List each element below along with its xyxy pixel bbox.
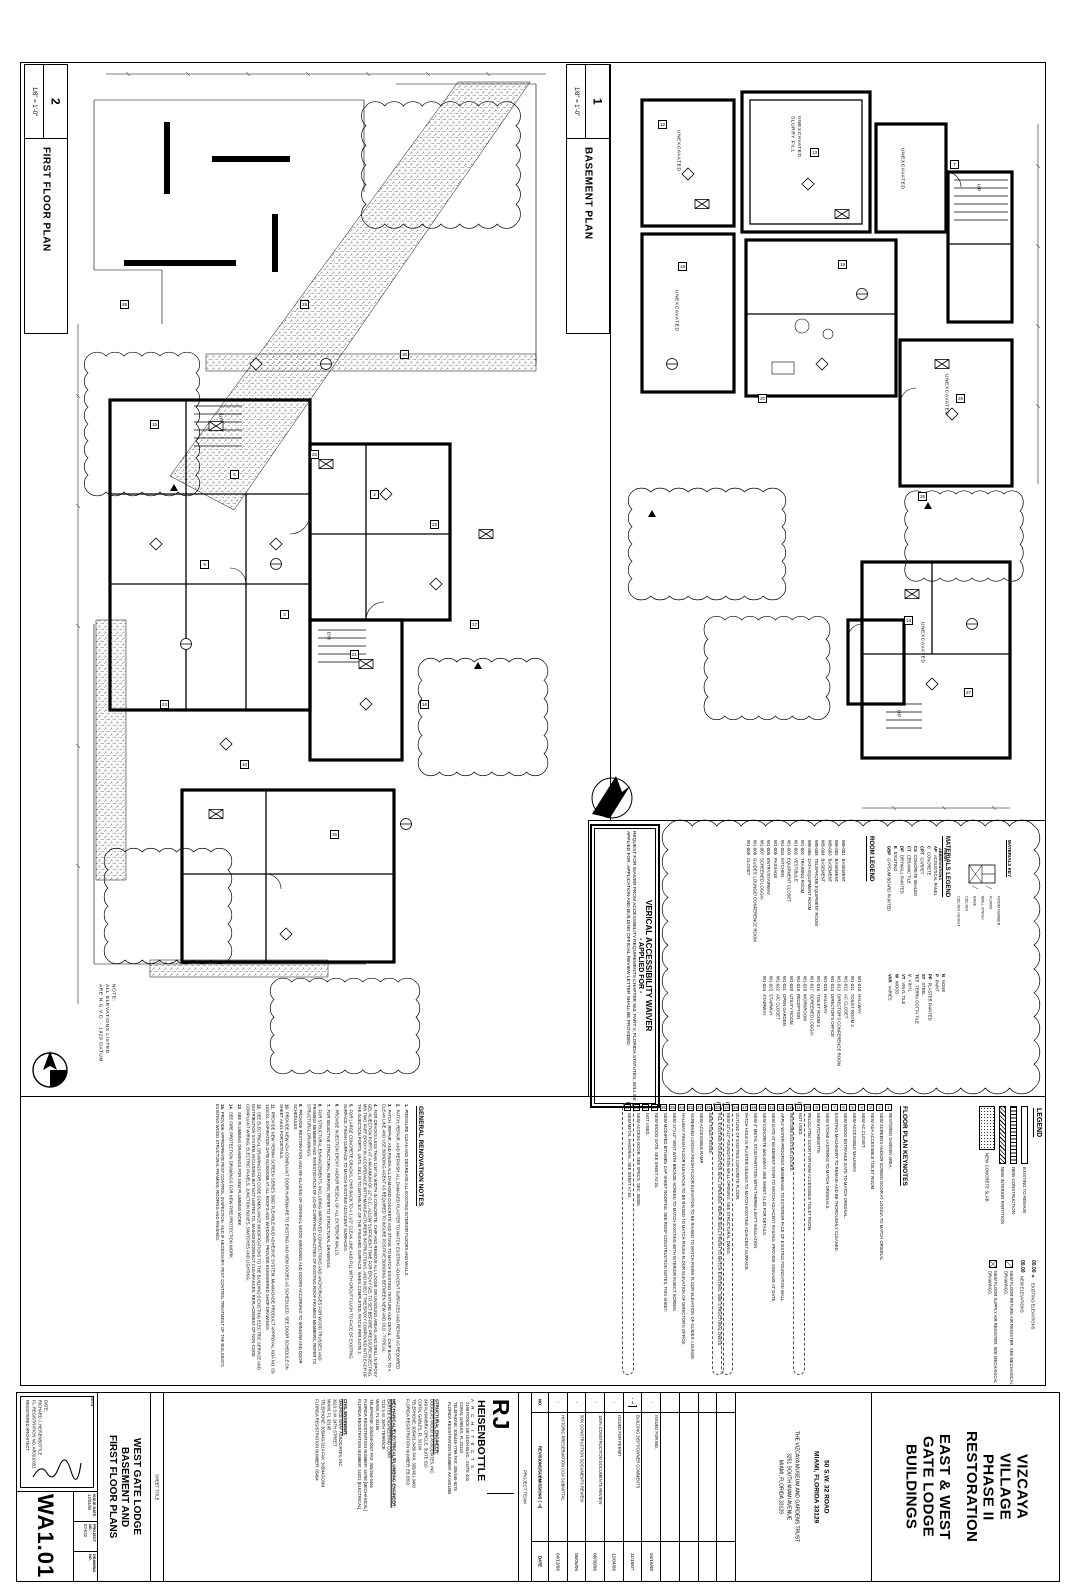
finish-entry: PPAINT	[934, 974, 940, 1092]
revision-row	[660, 1393, 679, 1581]
keynote-number: 7	[831, 1104, 838, 1111]
legend: LEGEND EXISTING TO REMAIN NEW CONSTRUCTI…	[908, 1102, 1046, 1386]
material-entry: GBPGYPSUM BOARD PAINTED	[886, 846, 892, 964]
keynote-text: NEW ACCESSIBLE RAMP.	[699, 1113, 704, 1373]
materials-key-label: BASE	[972, 896, 977, 906]
materials-key-label: WALL FINISH	[980, 896, 985, 920]
keynote-tag	[474, 662, 482, 669]
seal-box: DATE: RICHARD J. HEISENBOTTLE FL. REGIST…	[20, 1396, 94, 1488]
room-legend-entry: W1-001TRAINING ROOM	[799, 840, 805, 972]
revision-date	[680, 1541, 698, 1581]
legend-hatch-entry: EXISTING TO REMAIN	[1021, 1106, 1028, 1277]
keynote-tag	[924, 502, 932, 509]
hatch-swatch	[999, 1106, 1006, 1164]
finish-entry: VVINYL	[907, 974, 913, 1092]
keynote-item: 21 NEW TOILET ROOM.	[705, 1104, 713, 1373]
finish-entry: STSTEEL	[920, 974, 926, 1092]
keynote-item: 20 FILL EXISTING FOUNDATION WALL OPENING…	[714, 1104, 722, 1373]
basement-plan-drawing: UNEXCAVATEDUNEXCAVATED SLURRY FILLUNEXCA…	[612, 64, 1048, 822]
keynote-item: 4 NEW AC CLOSET.	[858, 1104, 866, 1373]
keynote-number: 10	[804, 1104, 811, 1111]
material-entry: CPTCARPET	[919, 846, 925, 964]
legend-symbol-entry: 00.00 × EXISTING ELEVATIONS	[1030, 1260, 1036, 1401]
keynote-item: 28 NOT USED.	[642, 1104, 650, 1373]
materials-key-title: MATERIALS KEY	[1007, 840, 1012, 877]
room-legend-entry: W1-020UTILITY ROOM	[788, 976, 794, 1108]
revision-number: 1	[624, 1393, 642, 1413]
project-team-cell: RJ HEISENBOTTLE A R C H I T E C T S 2199…	[163, 1393, 531, 1581]
basement-plan-linework	[612, 64, 1048, 822]
keynote-item: 17 PATCH HOLE IN PLASTER CEILING TO MATC…	[741, 1104, 749, 1373]
general-note-item: 6.PROVIDE INJECTION EPOXY AND/OR RESEAL …	[334, 1104, 339, 1378]
keynote-item: 15 NEW CONCRETE WALKWAY. SEE SHEET A1.02…	[759, 1104, 767, 1373]
plan-text-label: UNEXCAVATED	[918, 622, 924, 664]
room-finish-tag-icon	[968, 864, 998, 890]
room-legend-entry: WB-001BASEMENT	[840, 840, 846, 972]
keynote-tag	[170, 484, 178, 491]
project-name-cell: VIZCAYA VILLAGE PHASE II RESTORATION EAS…	[871, 1393, 1059, 1581]
plan-text-label: UNEXCAVATED SLURRY FILL	[788, 116, 801, 158]
revisions-date-header: DATE	[532, 1541, 548, 1581]
basement-scale: 1/8" = 1'-0"	[573, 87, 579, 116]
revision-row: - 50% CONSTRUCTION DOCUMENTS REVIEW 05/0…	[567, 1393, 586, 1581]
revision-date: 12/04/06	[605, 1541, 623, 1581]
project-team-label: PROJECT TEAM	[523, 1470, 528, 1504]
room-legend-entry: W1-016TOILET ROOM 1	[815, 976, 821, 1108]
legend-symbols: 00.00 × EXISTING ELEVATIONS 00.00 NEW EL…	[987, 1260, 1036, 1401]
keynote-tag: 24	[160, 700, 169, 709]
revision-number	[680, 1393, 698, 1413]
keynote-item: 26 NEW MODIFIED BITUMEN CAP SHEET ROOFIN…	[660, 1104, 668, 1373]
keynote-number: 15	[759, 1104, 766, 1111]
north-arrow-icon	[26, 1046, 74, 1094]
plan-text-label: DN	[324, 632, 330, 640]
finishes-list: NNONEPPAINTPPPLASTER PAINTEDSTSTEELTCTTE…	[887, 974, 946, 1092]
keynote-tag: 5	[230, 470, 239, 479]
symbol-glyph: 00.00 ×	[1030, 1260, 1036, 1280]
revision-date: 11/16/07	[624, 1541, 642, 1581]
legend-symbol-entry: ⧄ NEW FLOOR RETURN AIR REGISTER. SEE MEC…	[1003, 1260, 1014, 1401]
finish-entry: PPPLASTER PAINTED	[927, 974, 933, 1092]
room-legend-entry: W1-024STAIRWAY	[761, 976, 767, 1108]
materials-key-label: CEILING	[964, 896, 969, 911]
revision-number: -	[568, 1393, 586, 1413]
keynotes-list: 1 RESTORED GARDEN AREA. 2 NEW SCREENS AN…	[624, 1104, 893, 1373]
room-legend-group-2: W1-010HALLWAYW1-011TOILET ROOM 2W1-012AC…	[761, 976, 862, 1108]
sheet-title: WEST GATE LODGE BASEMENT AND FIRST FLOOR…	[106, 1435, 142, 1538]
keynote-tag: 14	[904, 616, 913, 625]
keynote-number: 11	[795, 1104, 802, 1111]
room-legend-entry: W1-019RECEPTION	[795, 976, 801, 1108]
plan-text-label: NOTE: ALL ELEVATIONS LISTED ARE N.G.V.D.…	[96, 984, 115, 1064]
revision-number: -	[605, 1393, 623, 1413]
keynote-text: NEW GATE AT BASEMENT STAIR TO MATCH ADJA…	[771, 1113, 776, 1373]
revision-date	[661, 1541, 679, 1581]
room-legend-entry: W1-023STAIRWAY	[768, 976, 774, 1108]
keynote-number: 26	[660, 1104, 667, 1111]
keynote-item: 12 RESTORE EXISTING DOORS.	[786, 1104, 794, 1373]
revision-row: 1 BUILDING DEPT/OWNER COMMENTS 11/16/07	[623, 1393, 642, 1581]
basement-plan-title-strip: 1/8" = 1'-0" 1 BASEMENT PLAN	[566, 64, 610, 334]
keynote-number: 25	[669, 1104, 676, 1111]
title-block-field: PROJECT NO. 03-032	[74, 1522, 97, 1552]
engineer-details: DOUGLAS WOOD & ASSOCIATES, INC. 249 ALHA…	[405, 1399, 435, 1511]
keynote-number: 2	[876, 1104, 883, 1111]
keynote-item: 6 NEW WOOD ENTRANCE GATE TO MATCH ORIGIN…	[840, 1104, 848, 1373]
keynote-text: RESTORED GARDEN AREA.	[888, 1113, 893, 1373]
keynote-tag: 17	[470, 620, 479, 629]
revision-description: ISSUED FOR PERMIT	[605, 1413, 623, 1541]
seal-label: SEAL	[90, 1396, 95, 1407]
north-arrow-icon	[582, 768, 634, 820]
revision-row	[716, 1393, 735, 1581]
floor-plan-keynotes: FLOOR PLAN KEYNOTES 1 RESTORED GARDEN AR…	[428, 1102, 908, 1386]
keynote-tag: 26	[918, 492, 927, 501]
keynote-tag: 22	[310, 450, 319, 459]
keynote-tag: 16	[420, 700, 429, 709]
signature-icon	[29, 1457, 85, 1483]
engineer-blocks: STRUCTURAL ENGINEER: DOUGLAS WOOD & ASSO…	[314, 1399, 440, 1511]
keynote-tag: 9	[200, 560, 209, 569]
material-entry: DPDRYWALL PAINTED	[899, 846, 905, 964]
revision-description	[717, 1413, 735, 1541]
keynote-tag: 25	[330, 830, 339, 839]
revision-date	[699, 1541, 717, 1581]
room-legend-entry: W1-009CLOSET	[745, 840, 751, 972]
hatch-label: NEW CONCRETE SLAB	[985, 1153, 990, 1263]
keynote-number: 29	[633, 1104, 640, 1111]
symbol-label: NEW FLOOR SUPPLY AIR REGISTER. SEE MECHA…	[987, 1271, 998, 1389]
room-legend-entry: W1-018WORKROOM	[802, 976, 808, 1108]
keynote-number: 4	[858, 1104, 865, 1111]
room-legend-entry: W1-022A/C CLOSET	[775, 976, 781, 1108]
symbol-glyph: ⧄	[1005, 1260, 1013, 1268]
drawing-number: WA1.01	[32, 1494, 58, 1578]
firm-initials-logo: RJ	[487, 1399, 514, 1494]
keynote-number: 28	[642, 1104, 649, 1111]
room-legend-entry: W1-010HALLWAY	[856, 976, 862, 1108]
keynote-text: NOT USED.	[798, 1113, 803, 1373]
finish-entry: VTVINYL TILE	[900, 974, 906, 1092]
symbol-glyph: ⊠	[989, 1260, 997, 1268]
keynote-number: 21	[705, 1104, 712, 1111]
room-legend-entry: W1-012AC CLOSET	[843, 976, 849, 1108]
engineer-details: BARTEK ENGINEERING CORP. 7210 S.W. 39TH …	[356, 1399, 392, 1511]
keynote-item: 16 NEW 4" METAL STUD PARTITION WITH THER…	[750, 1104, 758, 1373]
first-floor-plan-title: FIRST FLOOR PLAN	[41, 147, 52, 333]
keynote-tag: 18	[678, 262, 687, 271]
revision-number	[661, 1393, 679, 1413]
revision-row: - ISSUED FOR PERMIT 12/04/06	[604, 1393, 623, 1581]
revision-date: 05/05/06	[568, 1541, 586, 1581]
keynote-text: NEW TOILET ROOM.	[708, 1113, 713, 1373]
keynote-text: NEW 12"x12" VENT WITH BRONZE SCREEN TO M…	[672, 1113, 677, 1373]
revision-description	[661, 1413, 679, 1541]
first-floor-plan-drawing: NOTE: ALL ELEVATIONS LISTED ARE N.G.V.D.…	[66, 64, 572, 1094]
legend-hatch-entry: NEW INTERIOR PARTITION	[999, 1106, 1006, 1277]
keynote-item: 7 EXISTING MACHINERY TO REMAIN AND BE TH…	[831, 1104, 839, 1373]
keynote-text: APPLY WATER-PROOFING MEMBRANE TO EXTERIO…	[780, 1113, 785, 1373]
keynote-item: 25 NEW 12"x12" VENT WITH BRONZE SCREEN T…	[669, 1104, 677, 1373]
general-note-item: 12.SEE ELECTRICAL DRAWINGS FOR CODE COMP…	[245, 1104, 261, 1378]
keynote-item: 18 OUTLINE OF EXISTING CONCRETE FLOOR.	[732, 1104, 740, 1373]
general-notes-list: 1.PRESSURE CLEAN AND DEGREASE ALL EXISTI…	[214, 1104, 409, 1378]
keynote-item: 22 NEW ACCESSIBLE RAMP.	[696, 1104, 704, 1373]
revision-date	[717, 1541, 735, 1581]
plan-text-label: UP	[974, 184, 980, 192]
keynote-item: 30 NEW METAL HANDRAIL. SEE SHEET A7.04.	[624, 1104, 632, 1373]
revision-description	[680, 1413, 698, 1541]
keynote-item: 10 RELOCATED DOOR FOR NEW ACCESSIBLE TOI…	[804, 1104, 812, 1373]
keynote-text: RELOCATED DOOR FOR NEW ACCESSIBLE TOILET…	[807, 1113, 812, 1373]
materials-column-header: FINISH ABBREVIATIONS	[938, 848, 948, 880]
field-value: 03-032	[83, 1524, 88, 1549]
room-legend-entry: W1-005PASSAGE	[772, 840, 778, 972]
revisions-cell: NO. REVISIONS/SUBMISSIONS (△) DATE	[531, 1393, 735, 1581]
firm-name: HEISENBOTTLE	[475, 1400, 487, 1494]
room-legend-entry: W1-003EQUIPMENT CLOSET	[786, 840, 792, 972]
keynote-number: 24	[678, 1104, 685, 1111]
engineer-block: CIVIL ENGINEER: MAURICE GRAY ASSOCIATES,…	[314, 1399, 349, 1511]
revision-description: BUILDING DEPT/OWNER COMMENTS	[624, 1413, 642, 1541]
revision-number	[717, 1393, 735, 1413]
general-note-item: 2.PATCH, REPAIR, AND REFINISH ALL DAMAGE…	[395, 1104, 400, 1378]
keynote-tag: 12	[658, 120, 667, 129]
keynote-text: FILL EXISTING FOUNDATION WALL OPENING. R…	[717, 1113, 722, 1373]
keynote-text: NEW KITCHENETTE.	[816, 1113, 821, 1373]
room-legend-group-1: WB-001BASEMENTWB-002BASEMENTWB-003BASEME…	[745, 840, 846, 972]
keynote-item: 1 RESTORED GARDEN AREA.	[885, 1104, 893, 1373]
finish-entry: NNONE	[940, 974, 946, 1092]
keynote-tag: 7	[950, 160, 959, 169]
keynote-text: NEW ACCESSIBLE WALKWAY.	[852, 1113, 857, 1373]
room-legend-entry: WB-002BASEMENT	[833, 840, 839, 972]
owner-address-cell: 50 S.W. 32 ROAD MIAMI, FLORIDA 33129 THE…	[735, 1393, 871, 1581]
general-note-item: 15.PROVIDE APPROPRIATE PEST CONTROL, INS…	[214, 1104, 225, 1378]
keynote-tag: 15	[150, 420, 159, 429]
room-legend-entry: W1-017SCREENED LOGGIA	[809, 976, 815, 1108]
keynote-text: NEW 4" METAL STUD PARTITION WITH THERMAL…	[753, 1113, 758, 1373]
room-legend-entry: W1-011TOILET ROOM 2	[849, 976, 855, 1108]
materials-key-label: ROOM NUMBER	[996, 896, 1001, 925]
plan-text-label: UNEXCAVATED	[672, 290, 678, 332]
keynote-text: RESTORE EXISTING DOORS.	[789, 1113, 794, 1373]
field-label: DRAWING NO.	[88, 1554, 96, 1579]
keynote-number: 8	[822, 1104, 829, 1111]
first-floor-view-number: 2	[49, 98, 63, 105]
revisions-header: REVISIONS/SUBMISSIONS (△)	[532, 1413, 548, 1541]
finish-entry: WWOOD	[894, 974, 900, 1092]
keynote-number: 9	[813, 1104, 820, 1111]
general-note-item: 5.FOR LARGE CONCRETE CRACKS, CHIP BACK T…	[342, 1104, 353, 1378]
general-renovation-notes: GENERAL RENOVATION NOTES 1.PRESSURE CLEA…	[28, 1102, 426, 1386]
general-notes-title: GENERAL RENOVATION NOTES	[417, 1106, 424, 1206]
keynote-tag: 19	[838, 260, 847, 269]
revisions-no-header: NO.	[532, 1393, 548, 1413]
keynote-number: 1	[885, 1104, 892, 1111]
field-label: PROJECT NO.	[88, 1524, 96, 1549]
plan-text-label: UP	[216, 414, 222, 422]
keynote-tag: 29	[300, 300, 309, 309]
keynote-item: 19 NEW 12"x12" FOUNDATION WALL OPENING. …	[723, 1104, 731, 1373]
keynote-number: 13	[777, 1104, 784, 1111]
room-legend-entry: W1-021OPEN GARDEN	[781, 976, 787, 1108]
room-legend-entry: W1-008GUIDES' LOUNGE/ CONFERENCE ROOM	[752, 840, 758, 972]
keynote-text: NEW WOOD GATE. SEE SHEET A2.04.	[654, 1113, 659, 1373]
revision-row	[679, 1393, 698, 1581]
keynote-tag: 20	[758, 394, 767, 403]
plan-text-label: UNEXCAVATED	[674, 130, 680, 172]
room-legend-entry: WB-006DATA EQUIPMENT ROOM	[806, 840, 812, 972]
title-block: DATE: RICHARD J. HEISENBOTTLE FL. REGIST…	[16, 1392, 1060, 1582]
room-legend-entry: W1-013DIRECTOR'S CONFERENCE ROOM	[836, 976, 842, 1108]
project-name-line-2: EAST & WEST GATE LODGE BUILDINGS	[902, 1434, 952, 1540]
revision-description: HISTORIC PRESERVATION COA SUBMITTAL	[549, 1413, 567, 1541]
revision-description: 100% CONSTRUCTION DOCUMENTS REVIEW	[586, 1413, 604, 1541]
plan-divider-line	[610, 64, 611, 820]
engineer-heading: MECHANICAL/ELECTRICAL/PLUMBING ENGINEER:	[392, 1399, 397, 1511]
keynote-number: 5	[849, 1104, 856, 1111]
keynote-tag: 21	[350, 650, 359, 659]
engineer-details: MAURICE GRAY ASSOCIATES, INC. 3923 S.W. …	[314, 1399, 344, 1511]
keynote-number: 18	[732, 1104, 739, 1111]
legend-hatch-entry: NEW CONCRETE SLAB	[979, 1106, 995, 1277]
room-legend-title: ROOM LEGEND	[868, 836, 874, 881]
keynote-tag: 2	[370, 490, 379, 499]
plan-text-label: UNEXCAVATED	[898, 148, 904, 190]
keynote-number: 16	[750, 1104, 757, 1111]
basement-plan-title: BASEMENT PLAN	[583, 147, 594, 333]
revision-number: -	[642, 1393, 660, 1413]
revision-date: 04/16/08	[642, 1541, 660, 1581]
keynote-number: 19	[723, 1104, 730, 1111]
revision-row: - 100% CONSTRUCTION DOCUMENTS REVIEW 06/…	[585, 1393, 604, 1581]
engineer-block: MECHANICAL/ELECTRICAL/PLUMBING ENGINEER:…	[356, 1399, 397, 1511]
materials-key-label: FLOOR	[988, 896, 993, 909]
keynote-number: 23	[687, 1104, 694, 1111]
keynote-item: 13 APPLY WATER-PROOFING MEMBRANE TO EXTE…	[777, 1104, 785, 1373]
revision-date: 06/30/06	[586, 1541, 604, 1581]
material-entry: EEXISTING	[892, 846, 898, 964]
keynote-tag: 13	[810, 148, 819, 157]
general-note-item: 14.SEE FIRE PROTECTION DRAWINGS FOR NEW …	[228, 1104, 233, 1378]
room-legend-entry: W1-002VESTIBULE	[793, 840, 799, 972]
general-note-item: 11.PROVIDE NEW 'PERMA SCREEN SERIES 3000…	[264, 1104, 275, 1378]
keynote-item: 5 NEW ACCESSIBLE WALKWAY.	[849, 1104, 857, 1373]
finish-entry: TCTTERRA COTTA TILE	[914, 974, 920, 1092]
general-note-item: 9.PROVIDE RESTORATION AND RE-GLAZING OF …	[292, 1104, 303, 1378]
materials-list: APACOUSTICAL PANELCCONCRETECPTCARPETCSCO…	[886, 846, 938, 964]
plan-text-label: UP	[894, 710, 900, 718]
legend-hatch-entry: NEW CONSTRUCTION	[1010, 1106, 1017, 1277]
keynote-item: 9 NEW KITCHENETTE.	[813, 1104, 821, 1373]
room-legend-entry: W1-004KITCHEN	[779, 840, 785, 972]
general-note-item: 10.PROVIDE NEW ADA COMPLIANT DOOR HARDWA…	[278, 1104, 289, 1378]
hatch-swatch	[979, 1106, 995, 1150]
general-note-item: 4.FOR CRACKS LESS THAN 1/16" IN WIDTH IN…	[356, 1104, 378, 1378]
project-site-address: 50 S.W. 32 ROAD MIAMI, FLORIDA 33129	[811, 1451, 831, 1523]
keynote-tag: 30	[400, 350, 409, 359]
architect-logo-block: RJ HEISENBOTTLE A R C H I T E C T S 2199…	[446, 1399, 514, 1494]
room-legend-entry: W1-006ENTRY/STAIRWAY	[765, 840, 771, 972]
keynote-text: NEW SCREENS AND/OR SCREEN DOOR AT LOGGIA…	[879, 1113, 884, 1373]
keynote-item: 29 NEW ACCESS DOOR. SEE SPECS. SEC. 0830…	[633, 1104, 641, 1373]
keynote-text: NEW CONCRETE WALKWAY. SEE SHEET A1.02 FO…	[762, 1113, 767, 1373]
symbol-glyph: 00.00	[1019, 1260, 1025, 1273]
keynote-text: NEW ADA ACCESSIBLE TOILET ROOM.	[870, 1113, 875, 1373]
keynote-item: 23 SCREENED LOGGIA FINISH FLOOR ELEVATIO…	[687, 1104, 695, 1373]
keynote-tag: 3	[280, 610, 289, 619]
keynote-item: 2 NEW SCREENS AND/OR SCREEN DOOR AT LOGG…	[876, 1104, 884, 1373]
general-note-item: 8.FOR STRUCTURAL ENHANCEMENTS, INCLUDING…	[306, 1104, 322, 1378]
keynote-item: 8 NEW STONE LANTERNS TO MATCH ORIGINALS.	[822, 1104, 830, 1373]
general-note-item: 3.PATCH, REPAIR, AND FINISH ALL DAMAGED …	[381, 1104, 392, 1378]
keynote-text: SCREENED LOGGIA FINISH FLOOR ELEVATION T…	[690, 1113, 695, 1373]
sheet-title-label: SHEET TITLE	[155, 1474, 160, 1500]
keynote-number: 17	[741, 1104, 748, 1111]
engineer-block: STRUCTURAL ENGINEER: DOUGLAS WOOD & ASSO…	[405, 1399, 440, 1511]
revision-row: - ISSUED FOR BID. 04/16/08	[641, 1393, 660, 1581]
material-entry: CCONCRETE	[926, 846, 932, 964]
room-legend-entry: WB-005TELEPHONE EQUIPMENT ROOM	[813, 840, 819, 972]
material-entry: CTCERAMIC TILE	[906, 846, 912, 964]
revision-number: -	[586, 1393, 604, 1413]
revisions-table: - ISSUED FOR BID. 04/16/08 1 BUILDING DE…	[548, 1393, 735, 1581]
keynote-tag: 27	[964, 688, 973, 697]
revision-number	[699, 1393, 717, 1413]
keynote-text: EXISTING MACHINERY TO REMAIN AND BE THOR…	[834, 1113, 839, 1373]
keynote-item: 14 NEW GATE AT BASEMENT STAIR TO MATCH A…	[768, 1104, 776, 1373]
project-name-line-1: VIZCAYA VILLAGE PHASE II RESTORATION	[962, 1431, 1029, 1542]
general-note-item: 13.SEE PLUMBING DRAWINGS FOR NEW PLUMBIN…	[237, 1104, 242, 1378]
keynote-item: 3 NEW ADA ACCESSIBLE TOILET ROOM.	[867, 1104, 875, 1373]
general-note-item: 7.FOR SELECTIVE STRUCTURAL REPAIRS, REFE…	[326, 1104, 331, 1378]
title-block-field: DRAWING NO.	[74, 1552, 97, 1581]
room-legend-entry: W1-007SCREENED LOGGIA	[759, 840, 765, 972]
keynote-item: 24 HALLWAY FINISH FLOOR ELEVATION TO BE …	[678, 1104, 686, 1373]
keynote-number: 20	[714, 1104, 721, 1111]
revision-row	[698, 1393, 717, 1581]
symbol-label: EXISTING ELEVATIONS	[1030, 1283, 1035, 1401]
engineer-heading: CIVIL ENGINEER:	[343, 1399, 348, 1511]
symbol-label: NEW FLOOR RETURN AIR REGISTER. SEE MECHA…	[1003, 1271, 1014, 1389]
legend-symbol-entry: ⊠ NEW FLOOR SUPPLY AIR REGISTER. SEE MEC…	[987, 1260, 998, 1401]
symbol-label: NEW ELEVATIONS	[1019, 1276, 1024, 1394]
revision-date: 04/13/06	[549, 1541, 567, 1581]
revision-number: -	[549, 1393, 567, 1413]
seal-and-drawing-number-cell: DATE: RICHARD J. HEISENBOTTLE FL. REGIST…	[17, 1393, 97, 1581]
keynote-text: NEW MODIFIED BITUMEN CAP SHEET ROOFING. …	[663, 1113, 668, 1373]
materials-key: MATERIALS KEY ROOM NUMBERFLOORWALL FINIS…	[954, 838, 1012, 1008]
keynote-tag: 26	[120, 300, 129, 309]
room-legend: ROOM LEGEND WB-001BASEMENTWB-002BASEMENT…	[664, 834, 876, 1098]
hatch-swatch	[1010, 1106, 1017, 1164]
keynote-text: OUTLINE OF EXISTING CONCRETE FLOOR.	[735, 1113, 740, 1373]
finish-entry: VARVARIES	[887, 974, 893, 1092]
materials-key-label: CEILING HEIGHT	[956, 896, 961, 927]
title-block-field: ISSUE DATE 12/04/06	[74, 1492, 97, 1522]
revision-row: - HISTORIC PRESERVATION COA SUBMITTAL 04…	[548, 1393, 567, 1581]
keynote-item: 11 NOT USED.	[795, 1104, 803, 1373]
hatch-swatch	[1021, 1106, 1028, 1164]
keynote-tag: 25	[956, 394, 965, 403]
owner-name-address: THE VIZCAYA MUSEUM AND GARDENS TRUST 325…	[777, 1431, 801, 1542]
first-floor-scale: 1/8" = 1'-0"	[31, 87, 37, 116]
first-floor-plan-title-strip: 1/8" = 1'-0" 2 FIRST FLOOR PLAN	[24, 64, 68, 334]
engineer-heading: STRUCTURAL ENGINEER:	[434, 1399, 439, 1511]
keynote-number: 12	[786, 1104, 793, 1111]
drawing-fields: ISSUE DATE 12/04/06 PROJECT NO. 03-032 D…	[73, 1492, 97, 1581]
